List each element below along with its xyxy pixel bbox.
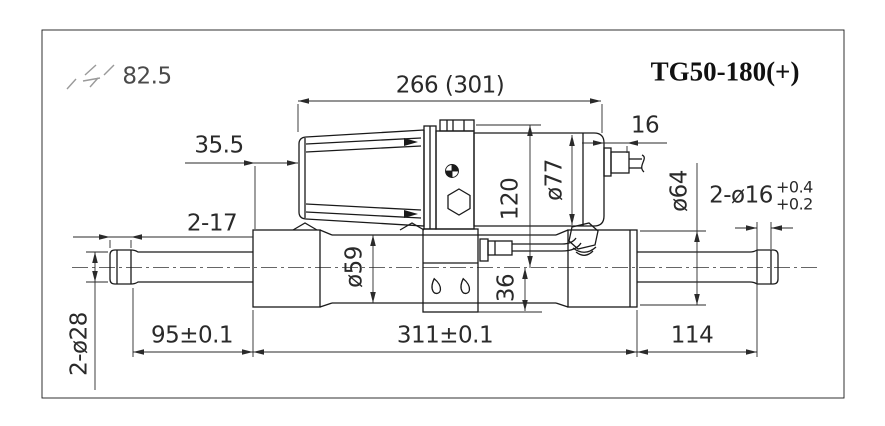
dim-left-shaft-dia-label: 2-ø28 [69, 312, 92, 376]
motor-housing [474, 133, 604, 226]
faint-corner-marks [67, 65, 114, 89]
pin-tolerance-lower: +0.2 [776, 197, 813, 213]
dim-motor-height-label: 120 [500, 178, 523, 220]
teardrop-hole-right [459, 278, 470, 294]
dim-overall-top-label: 266 (301) [396, 75, 505, 98]
dim-pin-holes-label: 2-ø16 [709, 185, 773, 208]
main-cylinder [253, 230, 637, 307]
screw-target-symbol [446, 165, 459, 178]
teardrop-hole-left [430, 278, 441, 294]
grease-line-fitting [480, 223, 598, 261]
dim-connector-label: 16 [631, 115, 659, 138]
dim-right-length-label: 114 [671, 325, 713, 348]
hex-plug [448, 189, 470, 215]
dim-body-length-label: 311±0.1 [397, 325, 493, 348]
mounting-bracket [423, 229, 478, 312]
gearbox-block [436, 131, 474, 229]
fin-tick-bottom [404, 210, 418, 218]
power-connector [604, 148, 644, 176]
hex-fitting-head [569, 223, 598, 249]
cable-break-squiggle [642, 155, 645, 172]
pin-tolerance-upper: +0.4 [776, 180, 813, 196]
dim-left-cap-label: 2-17 [187, 213, 237, 236]
dim-left-length-label: 95±0.1 [151, 325, 233, 348]
left-shaft [110, 250, 253, 284]
drawing-title: TG50-180(+) [651, 59, 800, 86]
top-terminal-tab [440, 120, 474, 131]
dim-bracket-drop-label: 36 [496, 274, 519, 302]
dim-motor-dia-label: ø77 [544, 159, 567, 201]
technical-drawing-sheet: TG50-180(+) 82.5 266 (301) 35.5 16 2-17 … [0, 0, 885, 426]
dim-end-dia-label: ø64 [669, 170, 692, 212]
fin-tick-top [404, 138, 418, 146]
dim-tube-dia-label: ø59 [344, 246, 367, 288]
corner-note-label: 82.5 [122, 66, 171, 89]
dim-motor-offset-label: 35.5 [194, 135, 243, 158]
dim-pin-tolerance-stack: +0.4 +0.2 [776, 180, 813, 213]
saddle-clamp-marks [293, 223, 424, 230]
